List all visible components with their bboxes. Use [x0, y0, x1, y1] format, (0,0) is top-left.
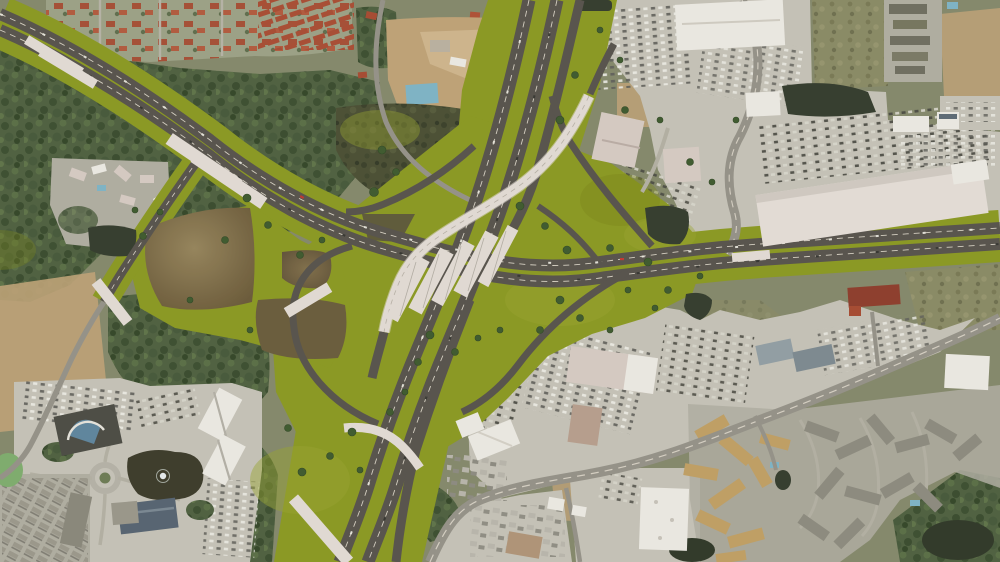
aerial-render-canvas	[0, 0, 1000, 562]
photo-tint-overlay	[0, 0, 1000, 562]
aerial-screenshot	[0, 0, 1000, 562]
